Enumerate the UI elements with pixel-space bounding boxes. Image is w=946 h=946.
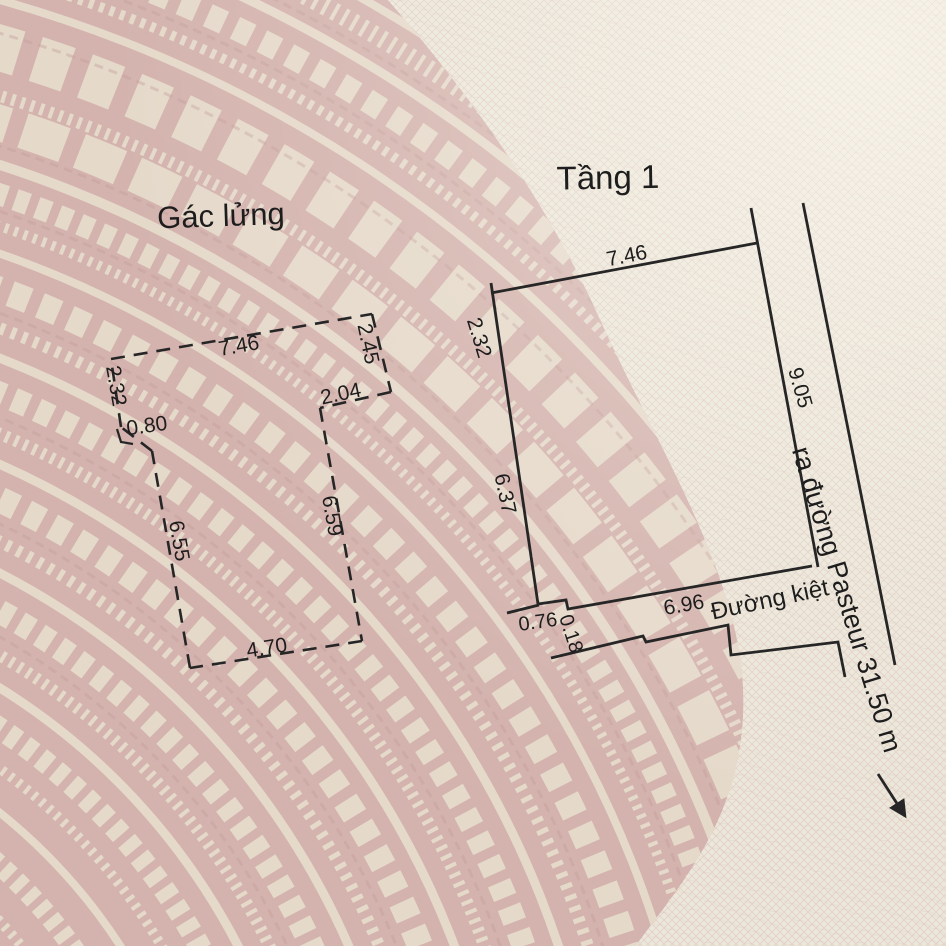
certificate-sketch-page: Gác lửng7.462.452.320.802.046.596.554.70… (0, 0, 946, 946)
site-sketch-canvas: Gác lửng7.462.452.320.802.046.596.554.70… (0, 0, 946, 946)
label-gac-lung: Gác lửng (157, 196, 286, 235)
label-tang-1: Tầng 1 (556, 158, 659, 197)
